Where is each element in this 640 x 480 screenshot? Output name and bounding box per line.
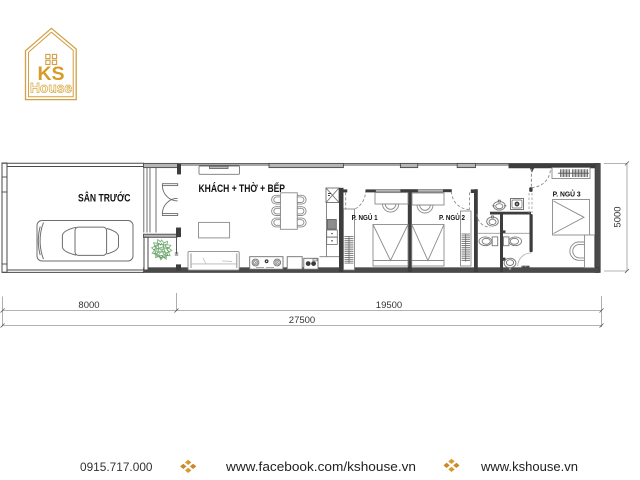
svg-text:House: House [30, 80, 72, 95]
svg-text:www.facebook.com/kshouse.vn: www.facebook.com/kshouse.vn [225, 459, 416, 474]
svg-text:P. NGỦ 2: P. NGỦ 2 [439, 213, 465, 222]
svg-text:SÂN TRƯỚC: SÂN TRƯỚC [78, 191, 131, 204]
svg-text:P. NGỦ 3: P. NGỦ 3 [553, 190, 581, 199]
svg-text:19500: 19500 [376, 300, 402, 311]
svg-text:27500: 27500 [289, 315, 315, 326]
svg-text:8000: 8000 [78, 300, 99, 311]
svg-text:5000: 5000 [613, 206, 624, 227]
svg-text:0915.717.000: 0915.717.000 [80, 460, 153, 474]
svg-text:P. NGỦ 1: P. NGỦ 1 [352, 213, 378, 222]
svg-text:KHÁCH + THỜ + BẾP: KHÁCH + THỜ + BẾP [199, 182, 286, 195]
svg-text:www.kshouse.vn: www.kshouse.vn [480, 459, 578, 474]
